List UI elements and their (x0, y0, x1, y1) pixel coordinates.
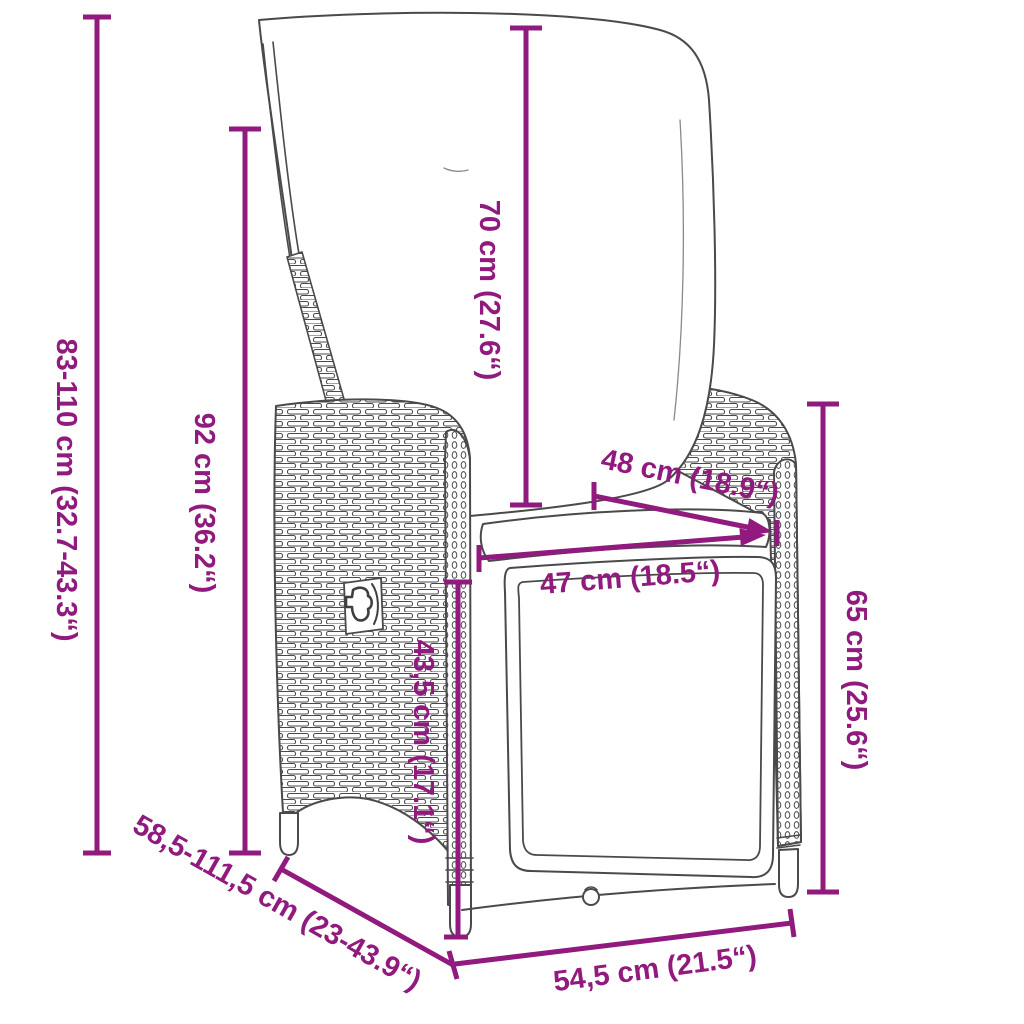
dim-label-back-cushion-height: 70 cm (27.6“) (473, 200, 505, 381)
dimension-diagram: 83-110 cm (32.7-43.3“) 92 cm (36.2“) 70 … (0, 0, 1024, 1024)
dim-line-overall-height (83, 17, 111, 853)
dim-line-backrest-height (229, 129, 261, 853)
right-foot (779, 849, 798, 897)
dim-label-overall-height: 83-110 cm (32.7-43.3“) (50, 338, 82, 641)
footrest-panel (505, 557, 776, 877)
base-frame-bar (462, 884, 775, 910)
dim-label-seat-height: 43,5 cm (17.1“) (407, 640, 439, 845)
dim-label-depth-range: 58,5-111,5 cm (23-43.9“) (127, 809, 426, 997)
dim-label-backrest-height: 92 cm (36.2“) (188, 413, 220, 594)
diagram-canvas: 83-110 cm (32.7-43.3“) 92 cm (36.2“) 70 … (0, 0, 1024, 1024)
back-left-foot (280, 813, 298, 855)
dim-line-armrest-height (807, 404, 839, 892)
right-armrest-side-strip (774, 459, 801, 846)
footrest-glide (583, 889, 599, 905)
dim-label-armrest-height: 65 cm (25.6“) (840, 590, 872, 771)
